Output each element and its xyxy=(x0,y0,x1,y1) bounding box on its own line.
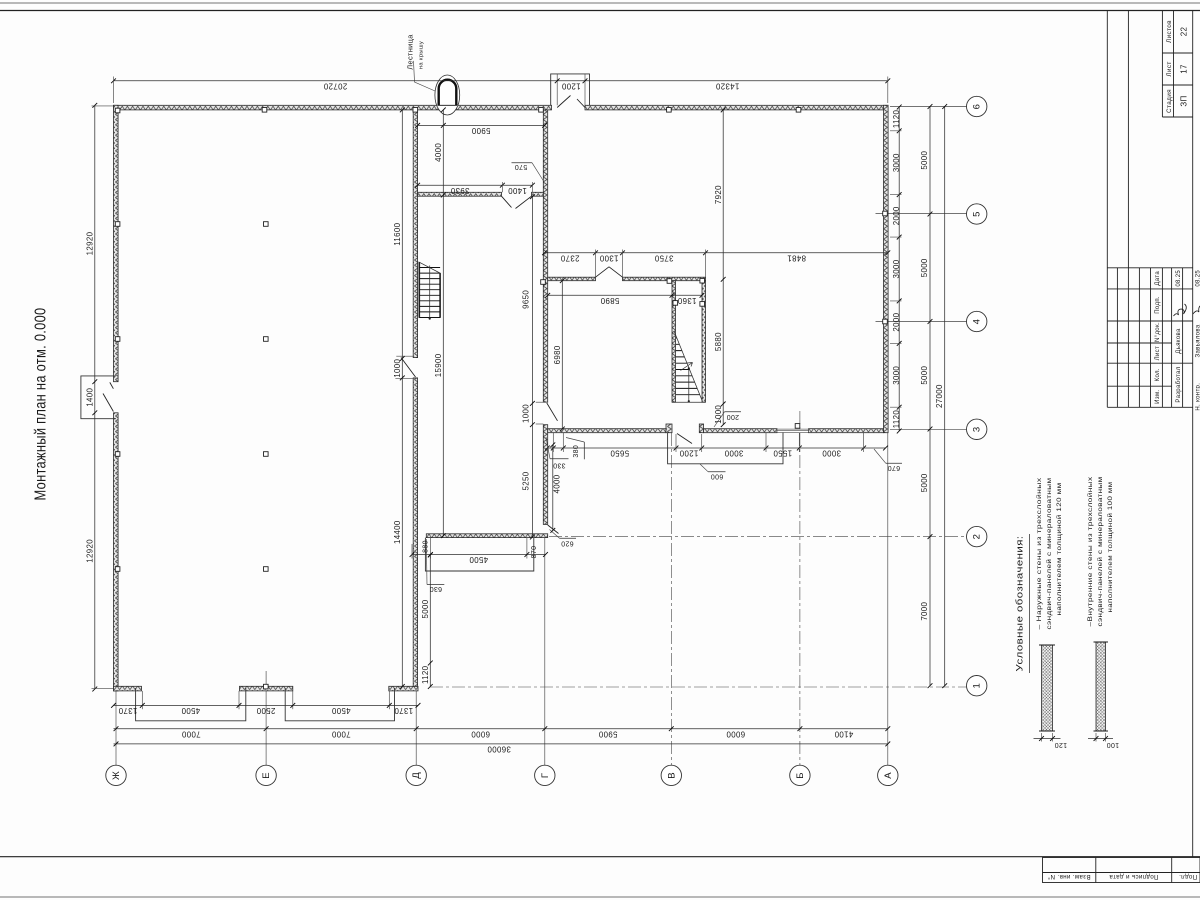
svg-text:5900: 5900 xyxy=(471,126,490,135)
svg-text:15900: 15900 xyxy=(434,353,443,377)
svg-text:1000: 1000 xyxy=(522,404,531,423)
svg-text:Лист: Лист xyxy=(1166,61,1173,76)
svg-text:630: 630 xyxy=(429,585,442,592)
svg-text:2370: 2370 xyxy=(560,253,579,262)
svg-text:08.25: 08.25 xyxy=(1196,270,1200,287)
svg-text:В: В xyxy=(666,772,677,779)
svg-text:7000: 7000 xyxy=(331,729,350,738)
svg-text:3750: 3750 xyxy=(654,253,673,262)
svg-text:сэндвич-панелей с минераловатн: сэндвич-панелей с минераловатным xyxy=(1096,477,1104,627)
svg-text:1360: 1360 xyxy=(677,296,696,305)
svg-text:1370: 1370 xyxy=(118,706,137,715)
svg-text:5880: 5880 xyxy=(714,332,723,351)
svg-text:Е: Е xyxy=(261,772,272,779)
svg-text:670: 670 xyxy=(887,464,900,471)
svg-text:Изм.: Изм. xyxy=(1155,390,1161,404)
svg-text:5890: 5890 xyxy=(600,296,619,305)
svg-text:–Внутренние стены из трехслойн: –Внутренние стены из трехслойных xyxy=(1086,476,1094,626)
svg-text:Разработал: Разработал xyxy=(1176,366,1182,402)
svg-text:3930: 3930 xyxy=(450,186,469,195)
svg-text:сэндвич-панелей с минераловатн: сэндвич-панелей с минераловатным xyxy=(1045,478,1053,630)
svg-text:11600: 11600 xyxy=(393,222,402,245)
svg-text:7000: 7000 xyxy=(181,729,200,738)
svg-text:8481: 8481 xyxy=(787,253,806,262)
svg-text:3000: 3000 xyxy=(892,259,901,278)
svg-text:наполнителем толщиной 100 мм: наполнителем толщиной 100 мм xyxy=(1106,482,1114,613)
svg-text:08.25: 08.25 xyxy=(1176,270,1182,287)
svg-text:100: 100 xyxy=(1106,741,1119,748)
svg-text:4100: 4100 xyxy=(834,729,853,738)
svg-text:3: 3 xyxy=(972,426,983,432)
svg-text:12920: 12920 xyxy=(85,539,94,563)
svg-text:Дьякова: Дьякова xyxy=(1176,328,1182,354)
svg-text:5650: 5650 xyxy=(610,449,629,458)
svg-text:1400: 1400 xyxy=(85,387,94,406)
svg-text:4000: 4000 xyxy=(434,143,443,162)
svg-text:Кол.: Кол. xyxy=(1155,368,1161,381)
svg-text:7920: 7920 xyxy=(714,185,723,204)
svg-text:Взам. инв. N°: Взам. инв. N° xyxy=(1047,873,1090,880)
svg-text:1370: 1370 xyxy=(394,706,413,715)
svg-text:3000: 3000 xyxy=(822,449,841,458)
svg-text:Условные обозначения:: Условные обозначения: xyxy=(1015,536,1025,672)
svg-text:Ж: Ж xyxy=(111,771,122,780)
svg-text:870: 870 xyxy=(531,546,538,559)
svg-text:600: 600 xyxy=(711,473,724,480)
svg-text:5900: 5900 xyxy=(598,729,617,738)
svg-text:14320: 14320 xyxy=(715,81,739,90)
svg-text:– Наружные стены из трехслойны: – Наружные стены из трехслойных xyxy=(1035,477,1043,629)
svg-text:Подпись и дата: Подпись и дата xyxy=(1109,873,1159,880)
svg-text:Дата: Дата xyxy=(1155,271,1161,286)
svg-text:1000: 1000 xyxy=(714,405,723,424)
svg-text:620: 620 xyxy=(561,539,574,546)
svg-text:ЗП: ЗП xyxy=(1180,95,1189,106)
svg-text:9650: 9650 xyxy=(522,290,531,309)
svg-text:7000: 7000 xyxy=(920,601,929,620)
svg-text:4500: 4500 xyxy=(469,555,488,564)
svg-text:5000: 5000 xyxy=(920,473,929,492)
svg-text:6000: 6000 xyxy=(726,729,745,738)
svg-text:2: 2 xyxy=(972,534,983,540)
svg-text:наполнителем толщиной 120 мм: наполнителем толщиной 120 мм xyxy=(1055,483,1063,616)
svg-text:6980: 6980 xyxy=(553,345,562,364)
svg-text:Листов: Листов xyxy=(1166,20,1173,43)
svg-text:17: 17 xyxy=(1180,64,1189,74)
svg-text:27000: 27000 xyxy=(935,384,944,408)
svg-text:3000: 3000 xyxy=(892,366,901,385)
svg-text:5000: 5000 xyxy=(920,258,929,277)
svg-text:Монтажный план на отм. 0.000: Монтажный план на отм. 0.000 xyxy=(33,308,50,501)
svg-text:1300: 1300 xyxy=(599,253,618,262)
svg-text:6: 6 xyxy=(972,104,983,110)
svg-text:Н. контр.: Н. контр. xyxy=(1196,383,1200,411)
svg-text:4000: 4000 xyxy=(553,474,562,493)
svg-text:3000: 3000 xyxy=(724,449,743,458)
svg-text:1120: 1120 xyxy=(892,109,901,128)
svg-text:1200: 1200 xyxy=(679,449,698,458)
svg-text:12920: 12920 xyxy=(85,231,94,255)
svg-text:N°док.: N°док. xyxy=(1155,322,1161,342)
svg-text:1400: 1400 xyxy=(508,186,527,195)
svg-text:5250: 5250 xyxy=(522,471,531,490)
svg-text:Стадия: Стадия xyxy=(1166,89,1173,113)
svg-text:1120: 1120 xyxy=(892,410,901,429)
svg-text:120: 120 xyxy=(1054,741,1067,748)
svg-text:5: 5 xyxy=(972,211,983,217)
svg-text:на крышу: на крышу xyxy=(419,41,425,69)
svg-text:22: 22 xyxy=(1180,27,1189,37)
svg-text:3000: 3000 xyxy=(892,153,901,172)
svg-text:5000: 5000 xyxy=(920,150,929,169)
svg-text:Лист: Лист xyxy=(1155,346,1161,360)
svg-text:1120: 1120 xyxy=(421,665,430,684)
svg-text:380: 380 xyxy=(573,445,580,458)
svg-text:200: 200 xyxy=(726,413,739,420)
svg-text:Д: Д xyxy=(411,772,422,779)
svg-text:5000: 5000 xyxy=(421,599,430,618)
svg-text:1: 1 xyxy=(972,683,983,689)
svg-text:Подп.: Подп. xyxy=(1155,296,1161,314)
svg-text:1000: 1000 xyxy=(393,358,402,377)
svg-text:Подл.: Подл. xyxy=(1179,873,1197,880)
svg-text:330: 330 xyxy=(553,461,566,468)
svg-text:14400: 14400 xyxy=(393,520,402,544)
svg-text:20720: 20720 xyxy=(323,81,347,90)
svg-text:Завьялова: Завьялова xyxy=(1196,324,1200,357)
svg-text:4: 4 xyxy=(972,319,983,325)
svg-text:1200: 1200 xyxy=(561,81,580,90)
svg-text:2000: 2000 xyxy=(892,312,901,331)
svg-text:570: 570 xyxy=(515,163,528,170)
svg-text:2000: 2000 xyxy=(892,206,901,225)
svg-text:880: 880 xyxy=(422,540,429,553)
svg-text:Б: Б xyxy=(795,772,806,779)
svg-text:1550: 1550 xyxy=(773,449,792,458)
svg-text:2500: 2500 xyxy=(256,706,275,715)
svg-text:Лестница: Лестница xyxy=(406,34,415,70)
svg-text:4500: 4500 xyxy=(331,706,350,715)
svg-text:5000: 5000 xyxy=(920,365,929,384)
svg-text:4500: 4500 xyxy=(181,706,200,715)
svg-text:Г: Г xyxy=(540,773,551,779)
svg-text:А: А xyxy=(883,772,894,779)
svg-text:36000: 36000 xyxy=(487,745,511,754)
svg-text:6000: 6000 xyxy=(471,729,490,738)
